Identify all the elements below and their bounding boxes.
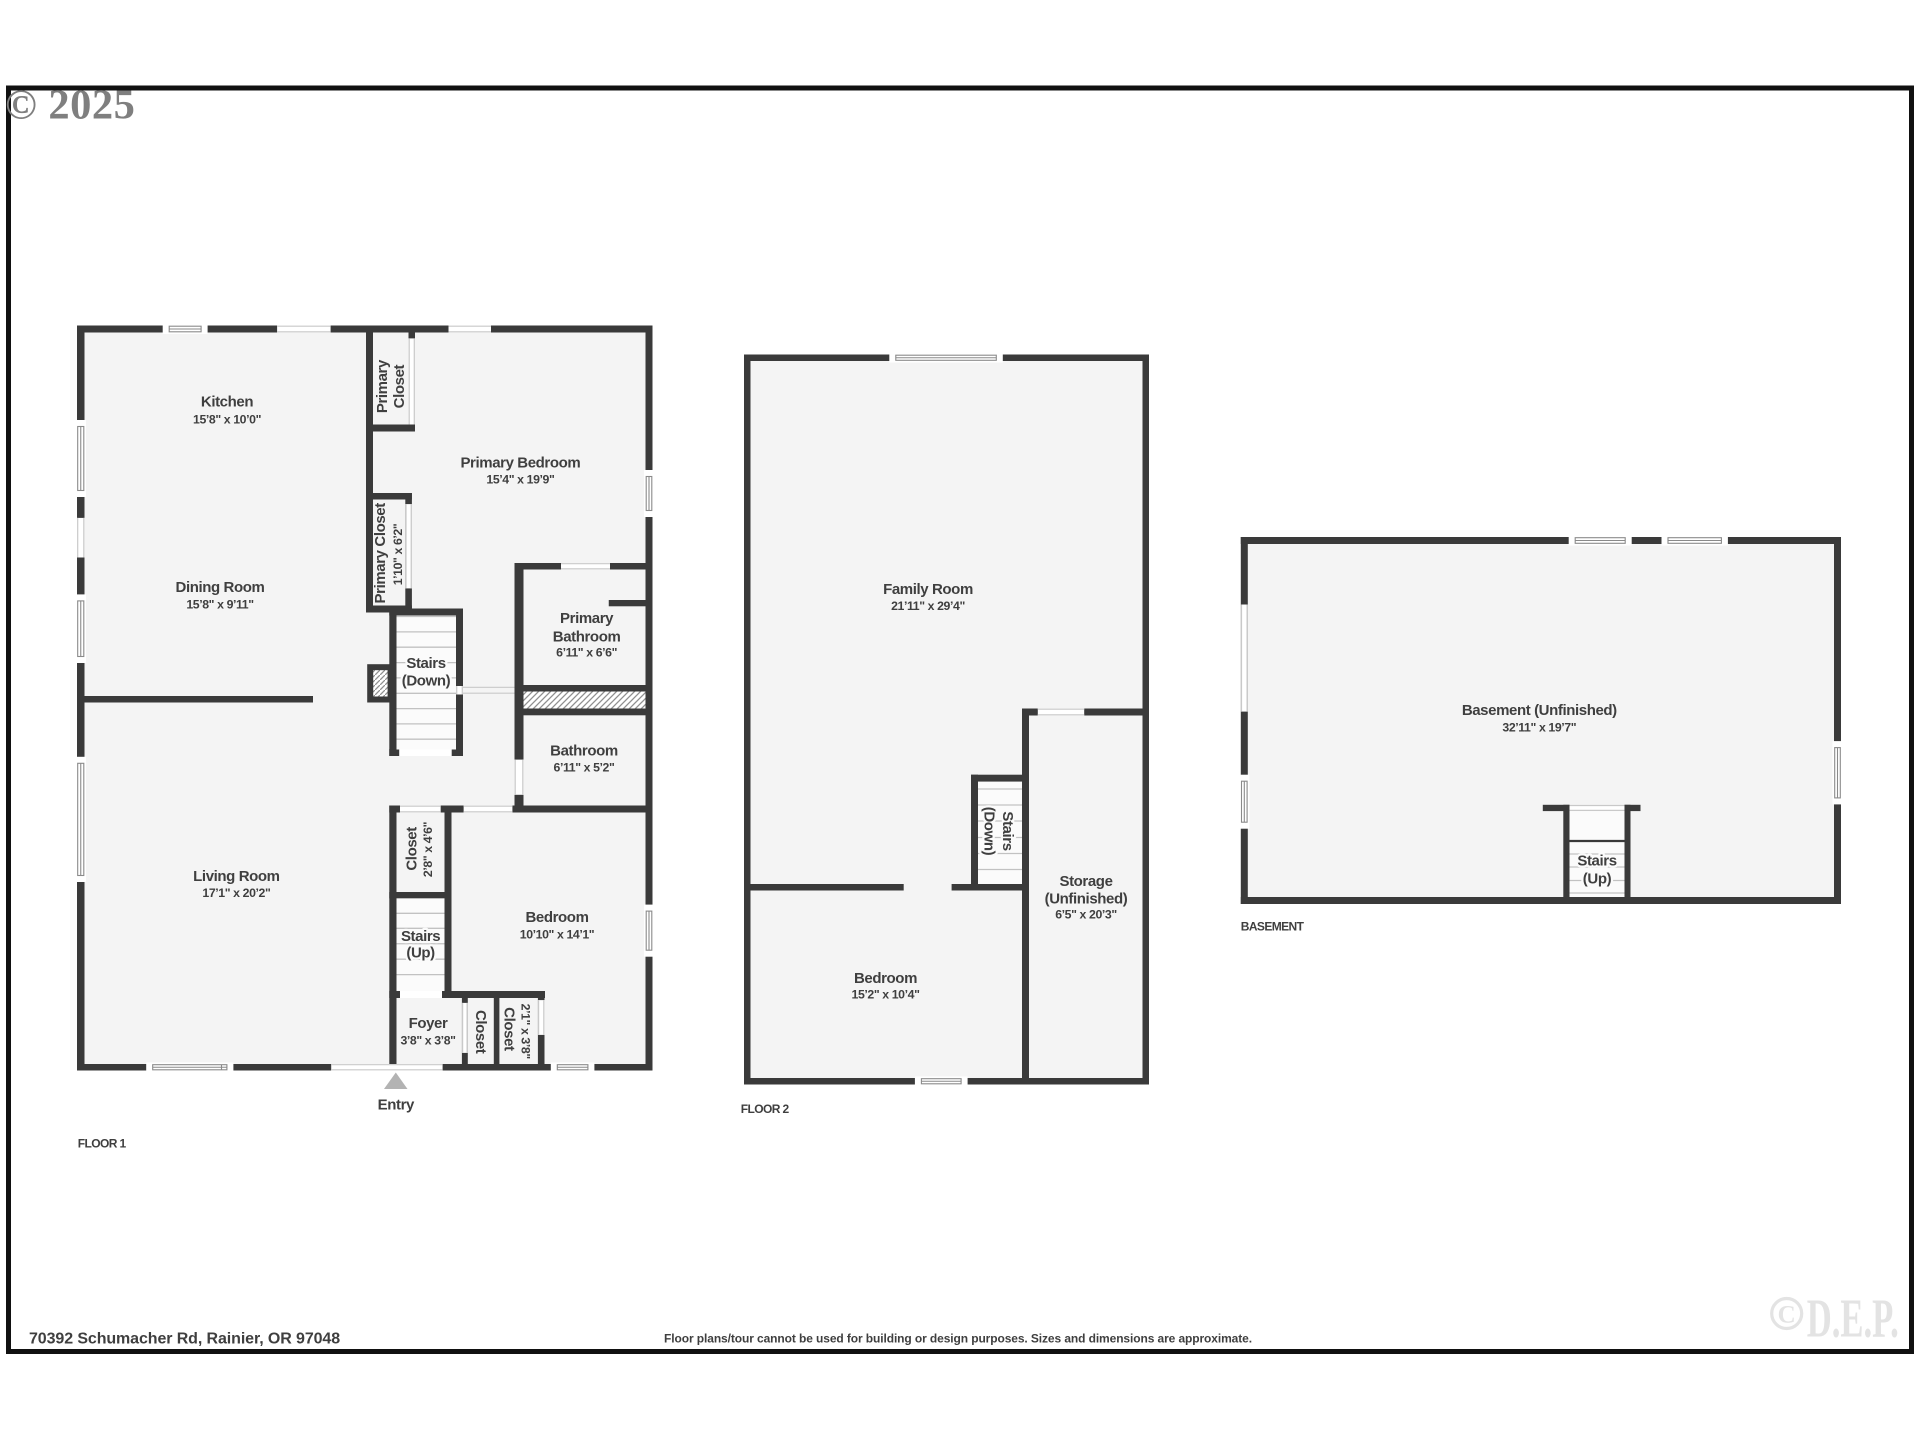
svg-text:Floor plans/tour cannot be use: Floor plans/tour cannot be used for buil…: [664, 1332, 1252, 1346]
svg-text:Family Room: Family Room: [883, 581, 973, 598]
svg-text:6’11" x 5’2": 6’11" x 5’2": [554, 761, 615, 775]
svg-text:32’11" x 19’7": 32’11" x 19’7": [1502, 721, 1576, 735]
svg-text:Primary Closet: Primary Closet: [372, 503, 389, 604]
svg-text:6’5" x 20’3": 6’5" x 20’3": [1055, 908, 1117, 922]
svg-text:Closet: Closet: [391, 364, 408, 408]
svg-text:FLOOR 1: FLOOR 1: [78, 1137, 127, 1151]
svg-text:15’2" x 10’4": 15’2" x 10’4": [852, 988, 921, 1002]
svg-text:Primary Bedroom: Primary Bedroom: [460, 455, 580, 472]
svg-text:(Down): (Down): [981, 807, 998, 856]
svg-text:C: C: [1778, 1302, 1796, 1329]
svg-text:(Up): (Up): [1583, 871, 1612, 888]
svg-text:2’8" x 4’6": 2’8" x 4’6": [421, 821, 435, 877]
svg-text:BASEMENT: BASEMENT: [1241, 920, 1305, 934]
svg-text:Kitchen: Kitchen: [201, 394, 253, 411]
svg-text:15’8" x 10’0": 15’8" x 10’0": [193, 413, 262, 427]
svg-text:(Up): (Up): [406, 945, 435, 962]
svg-text:70392 Schumacher Rd, Rainier,: 70392 Schumacher Rd, Rainier, OR 97048: [29, 1331, 340, 1348]
svg-text:15’8" x 9’11": 15’8" x 9’11": [186, 598, 254, 612]
svg-text:2’1" x 3’8": 2’1" x 3’8": [518, 1004, 532, 1060]
svg-text:17’1" x 20’2": 17’1" x 20’2": [202, 886, 271, 900]
svg-text:1’10" x 6’2": 1’10" x 6’2": [391, 523, 405, 585]
svg-text:Primary: Primary: [374, 359, 391, 413]
svg-text:Storage: Storage: [1059, 873, 1112, 890]
svg-text:6’11" x 6’6": 6’11" x 6’6": [556, 646, 617, 660]
svg-text:Bedroom: Bedroom: [525, 909, 588, 926]
svg-text:(Down): (Down): [402, 673, 451, 690]
svg-text:© 2025: © 2025: [5, 82, 135, 129]
svg-text:Bathroom: Bathroom: [550, 743, 618, 760]
svg-text:Living Room: Living Room: [193, 868, 279, 885]
svg-text:Dining Room: Dining Room: [176, 579, 265, 596]
svg-text:3’8" x 3’8": 3’8" x 3’8": [400, 1034, 456, 1048]
svg-text:Stairs: Stairs: [999, 811, 1016, 850]
svg-text:Closet: Closet: [404, 827, 421, 871]
svg-text:Foyer: Foyer: [409, 1015, 448, 1032]
svg-text:Bedroom: Bedroom: [854, 970, 917, 987]
svg-text:10’10" x 14’1": 10’10" x 14’1": [520, 928, 595, 942]
svg-text:D.E.P.: D.E.P.: [1807, 1287, 1899, 1348]
svg-text:Basement (Unfinished): Basement (Unfinished): [1462, 702, 1617, 719]
svg-text:(Unfinished): (Unfinished): [1045, 891, 1128, 908]
svg-text:Stairs: Stairs: [1577, 853, 1616, 870]
svg-text:15’4" x 19’9": 15’4" x 19’9": [486, 473, 555, 487]
svg-text:Bathroom: Bathroom: [553, 629, 621, 646]
svg-text:Closet: Closet: [472, 1010, 489, 1054]
svg-text:Stairs: Stairs: [406, 655, 445, 672]
svg-text:Entry: Entry: [378, 1097, 415, 1114]
svg-text:21’11" x 29’4": 21’11" x 29’4": [891, 599, 965, 613]
svg-text:Stairs: Stairs: [401, 928, 440, 945]
svg-text:Closet: Closet: [501, 1007, 518, 1051]
svg-text:FLOOR 2: FLOOR 2: [741, 1102, 790, 1116]
svg-text:Primary: Primary: [560, 610, 614, 627]
